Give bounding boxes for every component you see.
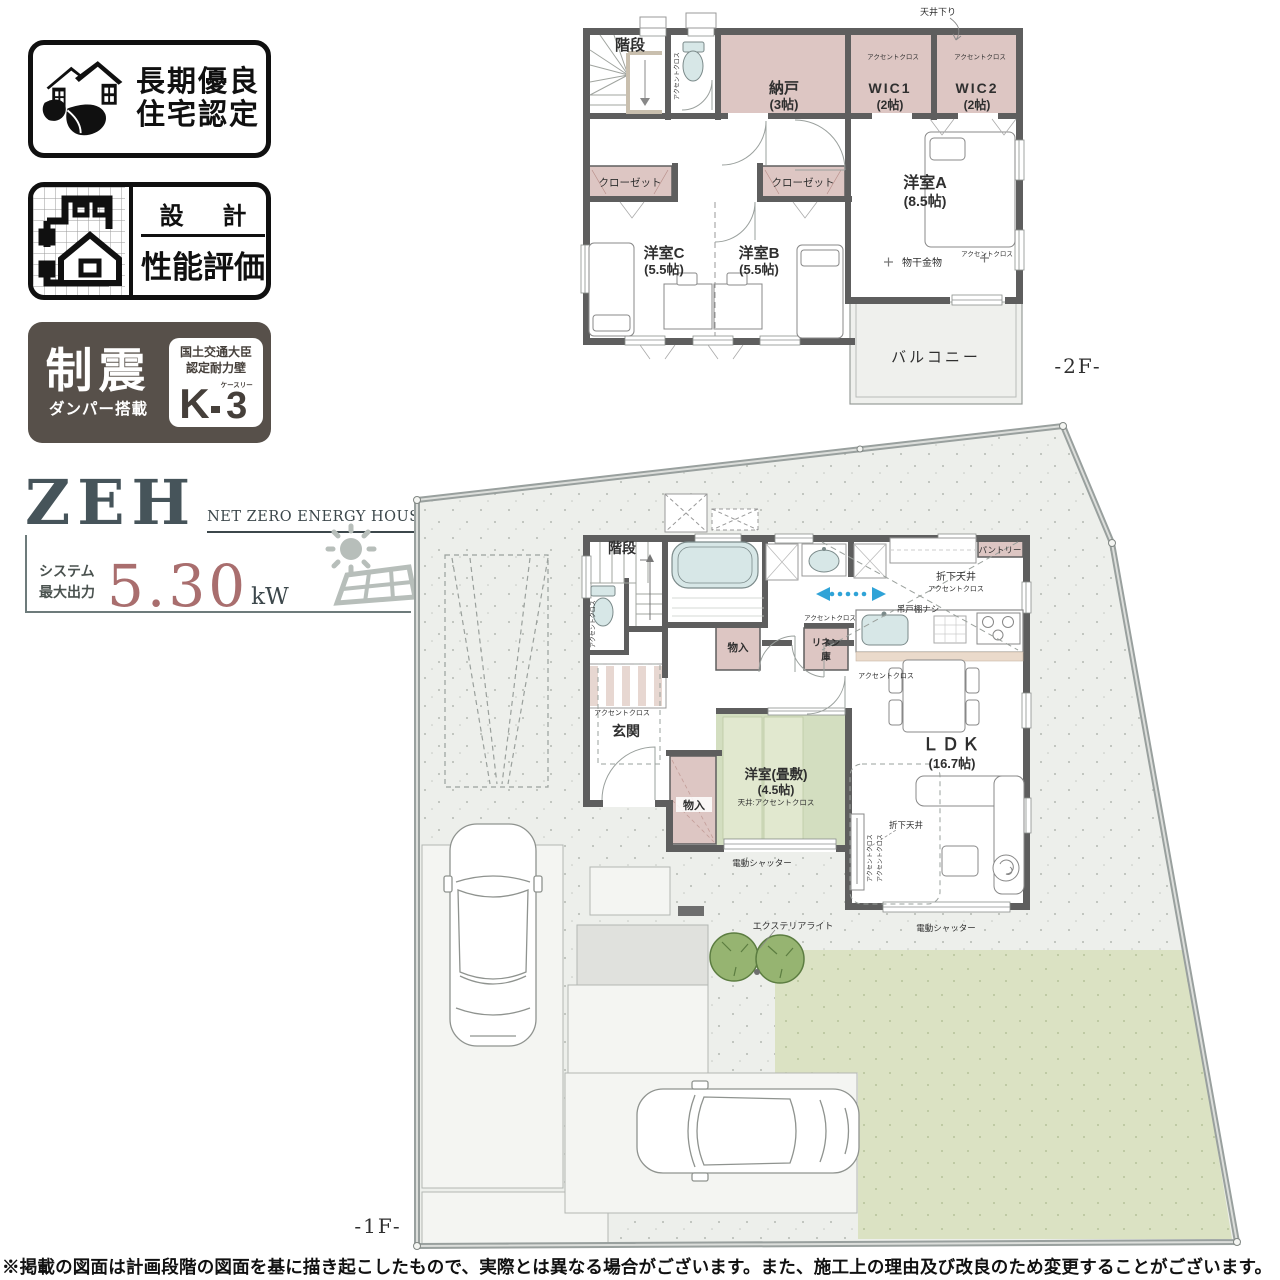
disclaimer-text: ※掲載の図面は計画段階の図面を基に描き起こしたもので、実際とは異なる場合がござい…	[2, 1254, 1280, 1279]
svg-text:アクセントクロス: アクセントクロス	[867, 53, 919, 61]
exterior-light-fixture	[754, 969, 760, 975]
washroom-1f	[766, 544, 846, 580]
svg-text:洋室(畳敷): 洋室(畳敷)	[745, 766, 808, 782]
floor2-label: -2F-	[1054, 354, 1101, 378]
svg-text:アクセントクロス: アクセントクロス	[804, 614, 856, 622]
svg-text:アクセントクロス: アクセントクロス	[867, 834, 874, 882]
svg-text:物入: 物入	[683, 798, 705, 812]
svg-text:納戸: 納戸	[769, 79, 799, 97]
svg-text:物干金物: 物干金物	[902, 256, 942, 269]
svg-text:パントリー: パントリー	[979, 545, 1022, 555]
svg-text:(5.5帖): (5.5帖)	[644, 262, 684, 277]
svg-text:(8.5帖): (8.5帖)	[904, 193, 947, 209]
car-top-view-horizontal	[637, 1081, 859, 1181]
svg-text:庫: 庫	[821, 651, 831, 663]
svg-text:吊戸棚ナシ: 吊戸棚ナシ	[897, 604, 940, 614]
svg-text:(3帖): (3帖)	[770, 97, 799, 112]
entry-step	[678, 906, 704, 916]
svg-text:アクセントクロス: アクセントクロス	[858, 672, 914, 680]
car-top-view-vertical	[444, 824, 542, 1046]
svg-text:(4.5帖): (4.5帖)	[758, 782, 795, 797]
svg-text:WIC1: WIC1	[869, 80, 912, 96]
svg-text:ＬＤＫ: ＬＤＫ	[922, 735, 982, 754]
stairs-1f-label: 階段	[608, 540, 636, 556]
svg-text:折下天井: 折下天井	[936, 570, 976, 583]
svg-text:WIC2: WIC2	[956, 80, 999, 96]
plan-2f: 階段 アクセントクロス	[581, 6, 1024, 404]
svg-text:バルコニー: バルコニー	[891, 349, 981, 366]
rooftop-vents	[640, 13, 716, 28]
svg-text:(16.7帖): (16.7帖)	[929, 756, 976, 771]
svg-text:洋室A: 洋室A	[903, 173, 947, 192]
svg-text:アクセントクロス: アクセントクロス	[877, 834, 884, 882]
svg-text:クローゼット: クローゼット	[599, 177, 662, 189]
room-linen	[804, 628, 848, 670]
svg-text:玄関: 玄関	[612, 723, 640, 739]
exterior-light-label: エクステリアライト	[753, 921, 834, 931]
floor-plan-canvas: エクステリアライト	[0, 0, 1280, 1280]
toilet-2f	[683, 42, 704, 81]
tv-board	[851, 814, 864, 890]
toilet-accent-label: アクセントクロス	[590, 600, 597, 648]
svg-text:(5.5帖): (5.5帖)	[739, 262, 779, 277]
svg-text:物入: 物入	[728, 641, 749, 654]
toilet-2f-accent: アクセントクロス	[674, 52, 681, 100]
svg-text:クローゼット: クローゼット	[772, 177, 835, 189]
svg-text:天井:アクセントクロス: 天井:アクセントクロス	[738, 797, 815, 807]
svg-text:洋室B: 洋室B	[739, 244, 780, 262]
dining-set	[889, 660, 979, 732]
svg-text:天井下り: 天井下り	[920, 6, 956, 17]
stairs-2f-label: 階段	[615, 36, 645, 54]
svg-text:アクセントクロス: アクセントクロス	[954, 53, 1006, 61]
floor1-label: -1F-	[354, 1214, 401, 1238]
svg-text:洋室C: 洋室C	[644, 244, 685, 262]
svg-text:リネン: リネン	[812, 638, 841, 649]
svg-text:(2帖): (2帖)	[877, 97, 904, 112]
svg-text:アクセントクロス: アクセントクロス	[594, 709, 650, 717]
svg-text:電動シャッター: 電動シャッター	[732, 858, 792, 868]
concrete-pad	[577, 925, 708, 985]
svg-text:(2帖): (2帖)	[964, 97, 991, 112]
svg-text:アクセントクロス: アクセントクロス	[961, 250, 1013, 258]
svg-text:電動シャッター: 電動シャッター	[916, 923, 976, 933]
svg-text:折下天井: 折下天井	[889, 820, 923, 830]
svg-text:アクセントクロス: アクセントクロス	[928, 585, 984, 593]
